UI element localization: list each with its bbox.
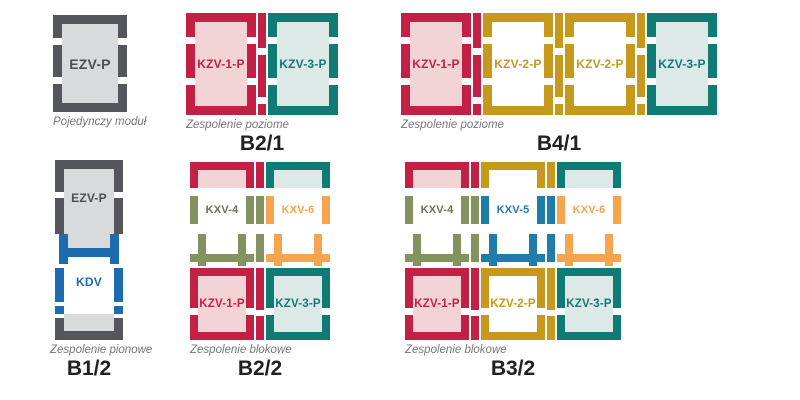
module-label: KXV-6 (266, 200, 330, 220)
module-label: KZV-2-P (481, 268, 545, 340)
combination-title: B4/1 (401, 132, 717, 156)
cap-interior (413, 170, 461, 188)
kdv-side-segment (114, 306, 123, 314)
strip-segment (256, 268, 264, 310)
module-label: EZV-P (55, 190, 123, 206)
h-connector-bar (190, 254, 254, 262)
cap-interior (198, 170, 246, 188)
module-label: KZV-1-P (186, 13, 256, 115)
module-label: KXV-4 (405, 200, 469, 220)
module-label: KXV-5 (481, 200, 545, 220)
diagram-b1-2: EZV-P KDV Zespolenie pionowe B1/2 (55, 160, 123, 340)
module-kzv-1-p: KZV-1-P (401, 13, 471, 115)
caption: Zespolenie poziome (186, 119, 289, 131)
h-connector-bar (557, 254, 621, 262)
combination-title: B2/2 (190, 357, 330, 381)
module-label: KDV (55, 274, 123, 290)
cap-flashing (190, 162, 254, 188)
strip-segment (256, 234, 264, 262)
strip-gap (637, 48, 645, 55)
module-kzv-3-p: KZV-3-P (557, 268, 621, 340)
kdv-side-segment (55, 268, 64, 302)
strip-gap (258, 97, 266, 104)
kdv-crossbar (59, 248, 119, 257)
caption: Zespolenie blokowe (190, 344, 292, 356)
strip-segment (547, 196, 555, 224)
diagram-b4-1: KZV-1-P KZV-2-P KZV-2-P KZV-3-P (401, 13, 717, 115)
strip-segment (471, 196, 479, 224)
module-kzv-1-p: KZV-1-P (190, 268, 254, 340)
kdv-side-segment (55, 306, 64, 314)
caption: Zespolenie poziome (401, 119, 504, 131)
strip-gap (555, 97, 563, 104)
module-label: KZV-3-P (647, 13, 717, 115)
connector-strip (555, 13, 563, 115)
connector-strip (471, 162, 479, 340)
module-kzv-1-p: KZV-1-P (405, 268, 469, 340)
combination-title: B3/2 (405, 357, 621, 381)
caption: Zespolenie pionowe (50, 344, 152, 356)
strip-gap (555, 48, 563, 55)
diagram-b2-2: KXV-4 KXV-6 KZV-1-P KZV-3-P Zespolenie b… (190, 162, 330, 340)
module-kzv-2-p: KZV-2-P (481, 268, 545, 340)
ezv-top-bar (55, 160, 123, 169)
strip-segment (256, 162, 264, 188)
module-kxv-4: KXV-4 (405, 162, 469, 264)
module-label: KZV-1-P (401, 13, 471, 115)
strip-segment (256, 316, 264, 340)
module-label: KZV-3-P (268, 13, 338, 115)
module-kxv-6: KXV-6 (557, 162, 621, 264)
kdv-side-segment (114, 268, 123, 302)
connector-strip (473, 13, 481, 115)
flashing-combinations-diagram: EZV-P Pojedynczy moduł KZV-1-P KZV-3-P Z… (0, 0, 800, 400)
h-connector-bar (481, 254, 545, 262)
strip-segment (256, 196, 264, 224)
strip-segment (547, 316, 555, 340)
diagram-b2-1: KZV-1-P KZV-3-P Zespolenie poziome B2/1 (186, 13, 338, 115)
ezv-side-segment (55, 169, 64, 192)
diagram-b3-2: KXV-4 KXV-5 KXV-6 (405, 162, 621, 340)
connector-strip (256, 162, 264, 340)
module-kzv-2-p: KZV-2-P (483, 13, 553, 115)
strip-gap (473, 48, 481, 55)
strip-segment (471, 234, 479, 262)
caption: Zespolenie blokowe (405, 344, 507, 356)
module-ezv-p: EZV-P (53, 15, 127, 112)
module-label: KZV-3-P (266, 268, 330, 340)
bottom-bar (55, 331, 123, 340)
connector-strip (547, 162, 555, 340)
module-kxv-4: KXV-4 (190, 162, 254, 264)
cap-interior (489, 170, 537, 188)
module-label: KZV-2-P (483, 13, 553, 115)
h-connector-bar (266, 254, 330, 262)
cap-interior (274, 170, 322, 188)
strip-gap (258, 48, 266, 55)
diagram-single-module: EZV-P Pojedynczy moduł (53, 15, 127, 112)
module-kzv-3-p: KZV-3-P (266, 268, 330, 340)
module-kzv-2-p: KZV-2-P (565, 13, 635, 115)
connector-strip (637, 13, 645, 115)
strip-segment (547, 234, 555, 262)
strip-segment (471, 268, 479, 310)
ezv-side-segment (114, 169, 123, 192)
bottom-interior (64, 314, 114, 331)
cap-flashing (266, 162, 330, 188)
combination-title: B2/1 (186, 132, 338, 156)
strip-segment (471, 162, 479, 188)
module-label: KXV-6 (557, 200, 621, 220)
strip-gap (637, 97, 645, 104)
module-kzv-1-p: KZV-1-P (186, 13, 256, 115)
module-label: KZV-3-P (557, 268, 621, 340)
combination-title: B1/2 (55, 357, 123, 381)
cap-flashing (557, 162, 621, 188)
ezv-interior (64, 169, 114, 248)
strip-segment (547, 162, 555, 188)
cap-flashing (481, 162, 545, 188)
connector-strip (258, 13, 266, 115)
cap-flashing (405, 162, 469, 188)
module-kzv-3-p: KZV-3-P (647, 13, 717, 115)
module-label: KZV-1-P (190, 268, 254, 340)
h-connector-bar (405, 254, 469, 262)
strip-segment (471, 316, 479, 340)
module-label: KZV-1-P (405, 268, 469, 340)
module-label: EZV-P (53, 15, 127, 112)
strip-gap (473, 97, 481, 104)
module-kxv-6: KXV-6 (266, 162, 330, 264)
caption: Pojedynczy moduł (53, 116, 146, 128)
module-kxv-5: KXV-5 (481, 162, 545, 264)
module-kzv-3-p: KZV-3-P (268, 13, 338, 115)
strip-segment (547, 268, 555, 310)
module-label: KZV-2-P (565, 13, 635, 115)
cap-interior (565, 170, 613, 188)
module-label: KXV-4 (190, 200, 254, 220)
